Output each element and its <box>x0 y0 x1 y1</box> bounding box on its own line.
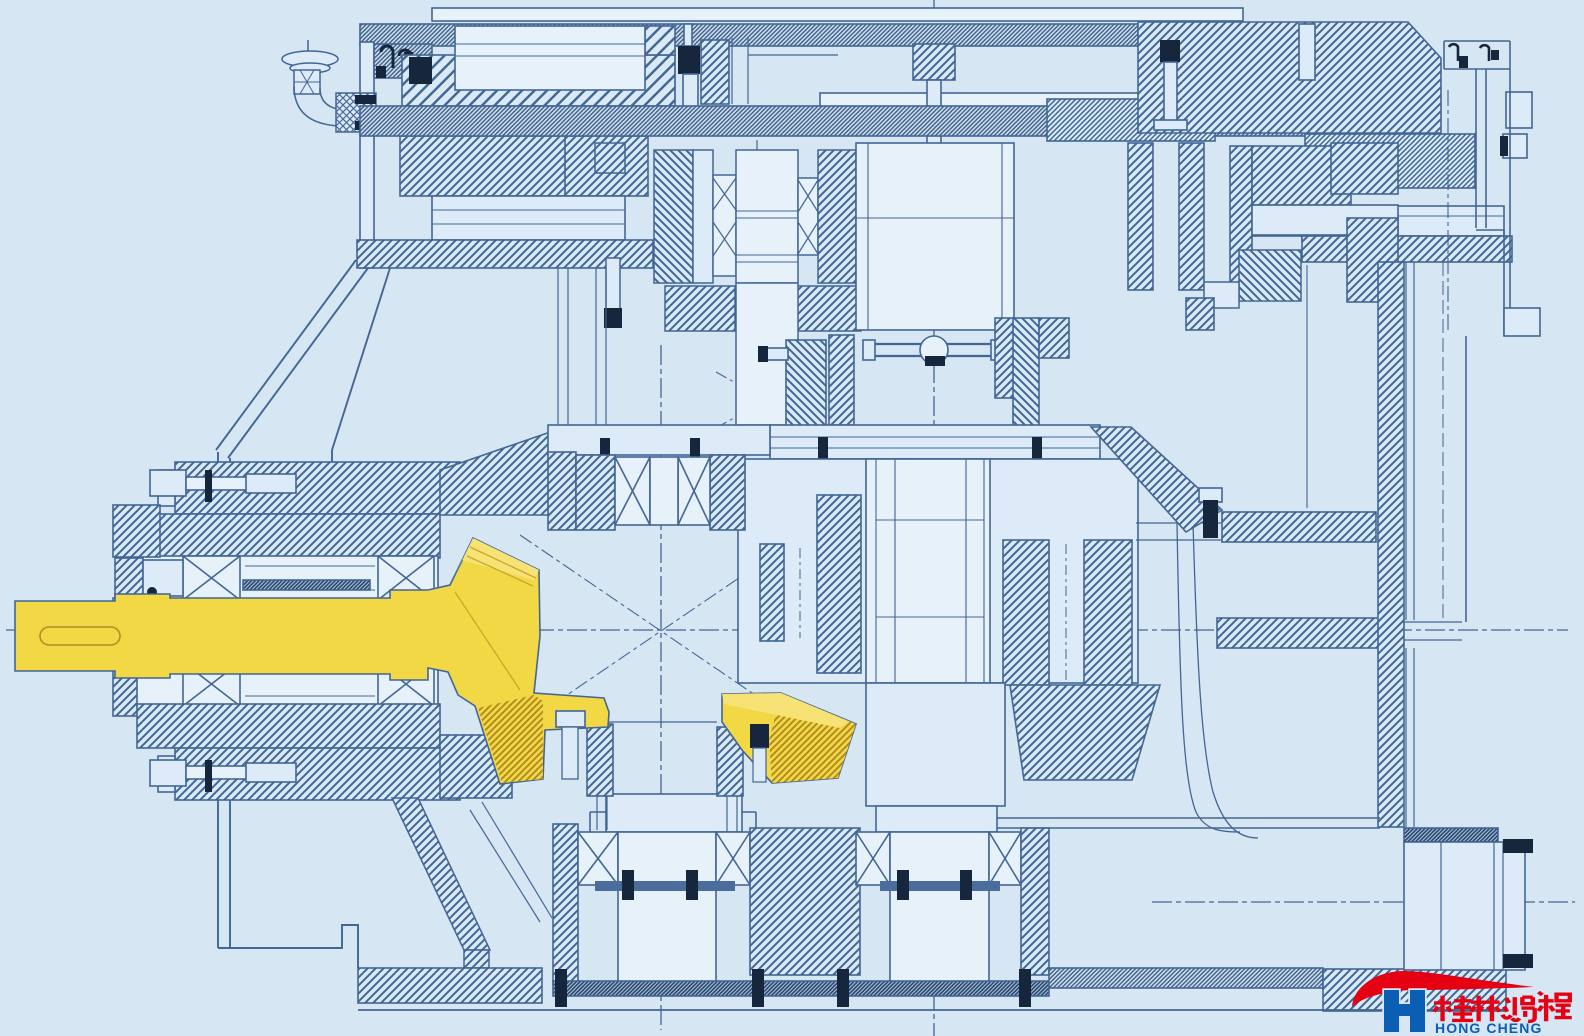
svg-text:HONG CHENG: HONG CHENG <box>1435 1020 1542 1036</box>
